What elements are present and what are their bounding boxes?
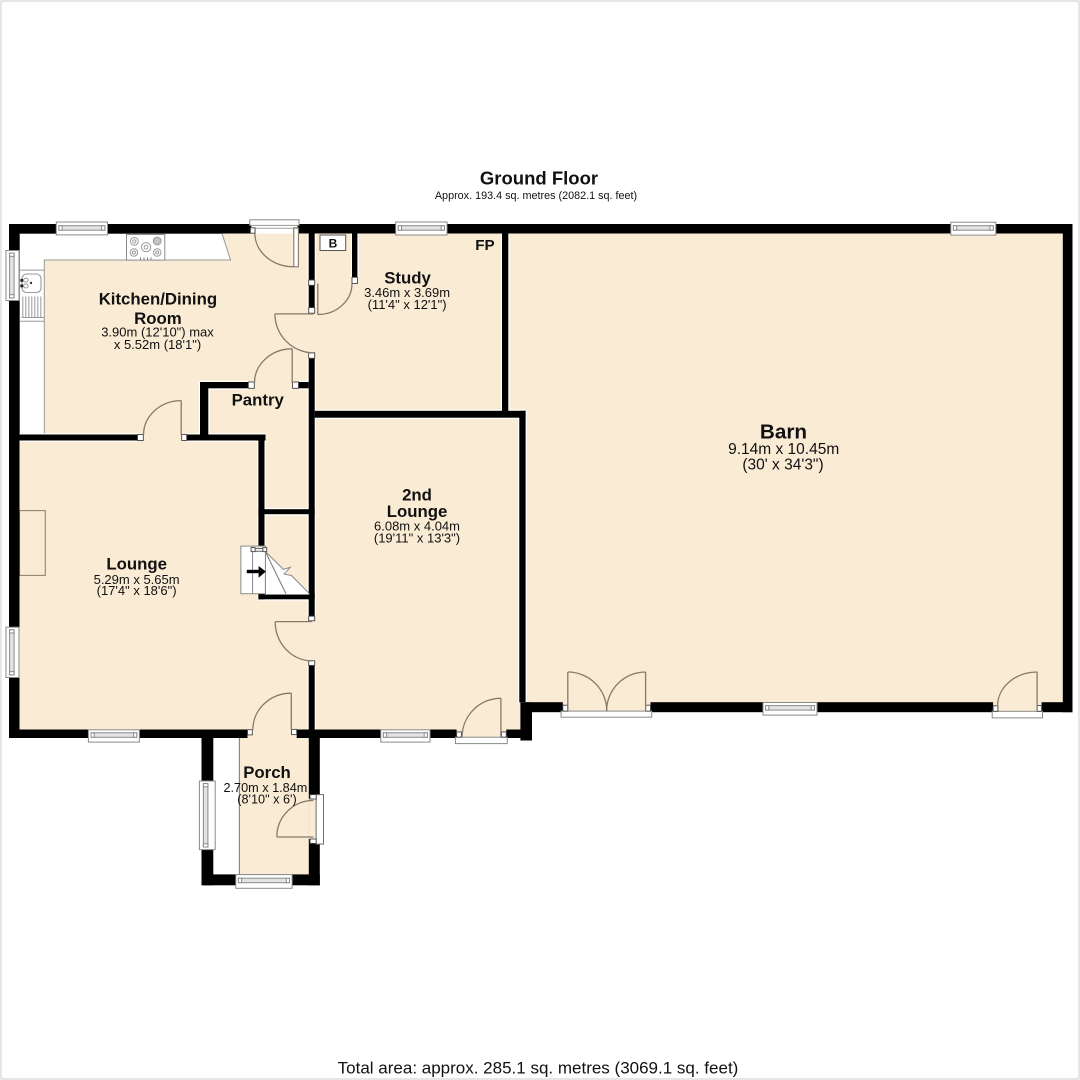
svg-text:Barn: Barn [760, 420, 807, 443]
svg-text:(17'4" x 18'6"): (17'4" x 18'6") [97, 583, 177, 598]
svg-text:Approx. 193.4 sq. metres (2082: Approx. 193.4 sq. metres (2082.1 sq. fee… [435, 190, 637, 202]
svg-text:Ground Floor: Ground Floor [480, 168, 598, 189]
svg-text:Pantry: Pantry [232, 391, 285, 410]
svg-text:Kitchen/Dining: Kitchen/Dining [99, 290, 217, 309]
svg-text:Lounge: Lounge [106, 555, 167, 574]
svg-text:(19'11" x 13'3"): (19'11" x 13'3") [374, 530, 460, 545]
svg-text:FP: FP [475, 237, 494, 254]
svg-text:Porch: Porch [243, 763, 291, 782]
svg-text:(11'4" x 12'1"): (11'4" x 12'1") [368, 297, 447, 312]
svg-text:x 5.52m (18'1"): x 5.52m (18'1") [114, 337, 201, 352]
svg-text:(8'10" x 6'): (8'10" x 6') [237, 792, 296, 806]
svg-text:(30' x 34'3"): (30' x 34'3") [742, 456, 823, 473]
svg-text:Total area: approx. 285.1 sq.: Total area: approx. 285.1 sq. metres (30… [338, 1059, 739, 1078]
svg-text:B: B [329, 237, 338, 251]
